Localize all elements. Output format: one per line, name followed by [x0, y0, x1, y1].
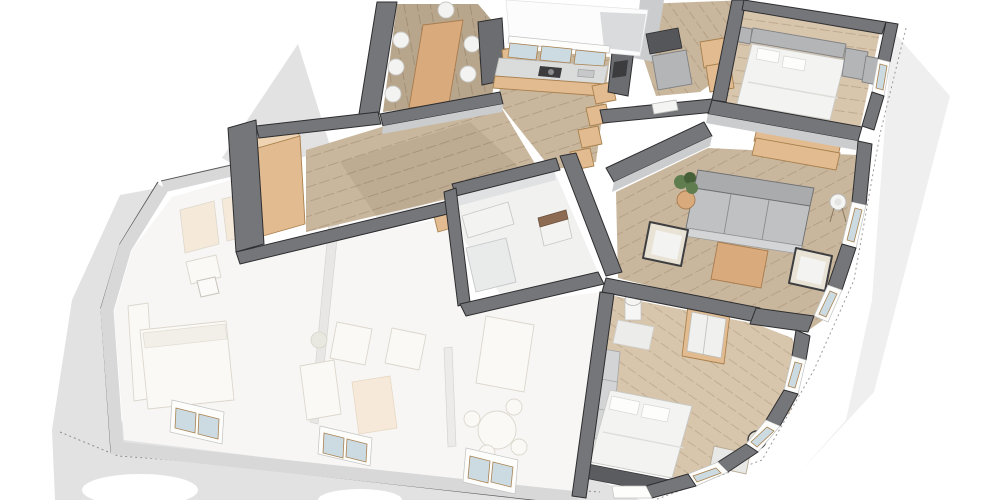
oven-front: [612, 60, 628, 78]
dining-chair: [464, 36, 480, 52]
dining-chair: [393, 32, 409, 48]
ghost-kitchen-island: [476, 316, 534, 392]
ghost-chair: [506, 399, 522, 415]
bedroom2-window: [612, 486, 652, 498]
dining-chair: [438, 2, 454, 18]
ghost-round-table: [478, 411, 516, 449]
ghost-armchair: [385, 328, 426, 370]
lamp-core: [835, 199, 842, 206]
floorplan-render: [0, 0, 1000, 500]
dining-chair: [460, 66, 476, 82]
dining-chair: [388, 59, 404, 75]
pot: [548, 69, 554, 75]
appliance: [652, 50, 692, 90]
plant-leaves: [686, 182, 698, 194]
open-shelf-step: [578, 126, 602, 148]
scene-canvas: [0, 0, 1000, 500]
ghost-plant: [311, 332, 327, 348]
hall-wardrobe: [258, 136, 305, 236]
sink: [578, 69, 594, 77]
kitchen-window-glass: [574, 50, 606, 66]
plant-leaves: [684, 172, 696, 184]
window-glass: [468, 456, 490, 483]
ghost-closet: [180, 201, 219, 253]
ghost-chair: [511, 439, 527, 455]
ghost-sofa: [300, 360, 341, 420]
ghost-coffee-table: [352, 376, 397, 434]
wardrobe-doors: [687, 312, 726, 358]
ghost-chair: [464, 411, 480, 427]
dining-chair: [385, 86, 401, 102]
ghost-armchair: [330, 322, 372, 365]
ghost-chair: [197, 277, 219, 297]
kitchen-window-glass: [508, 43, 538, 60]
kitchen-window-glass: [540, 46, 572, 63]
